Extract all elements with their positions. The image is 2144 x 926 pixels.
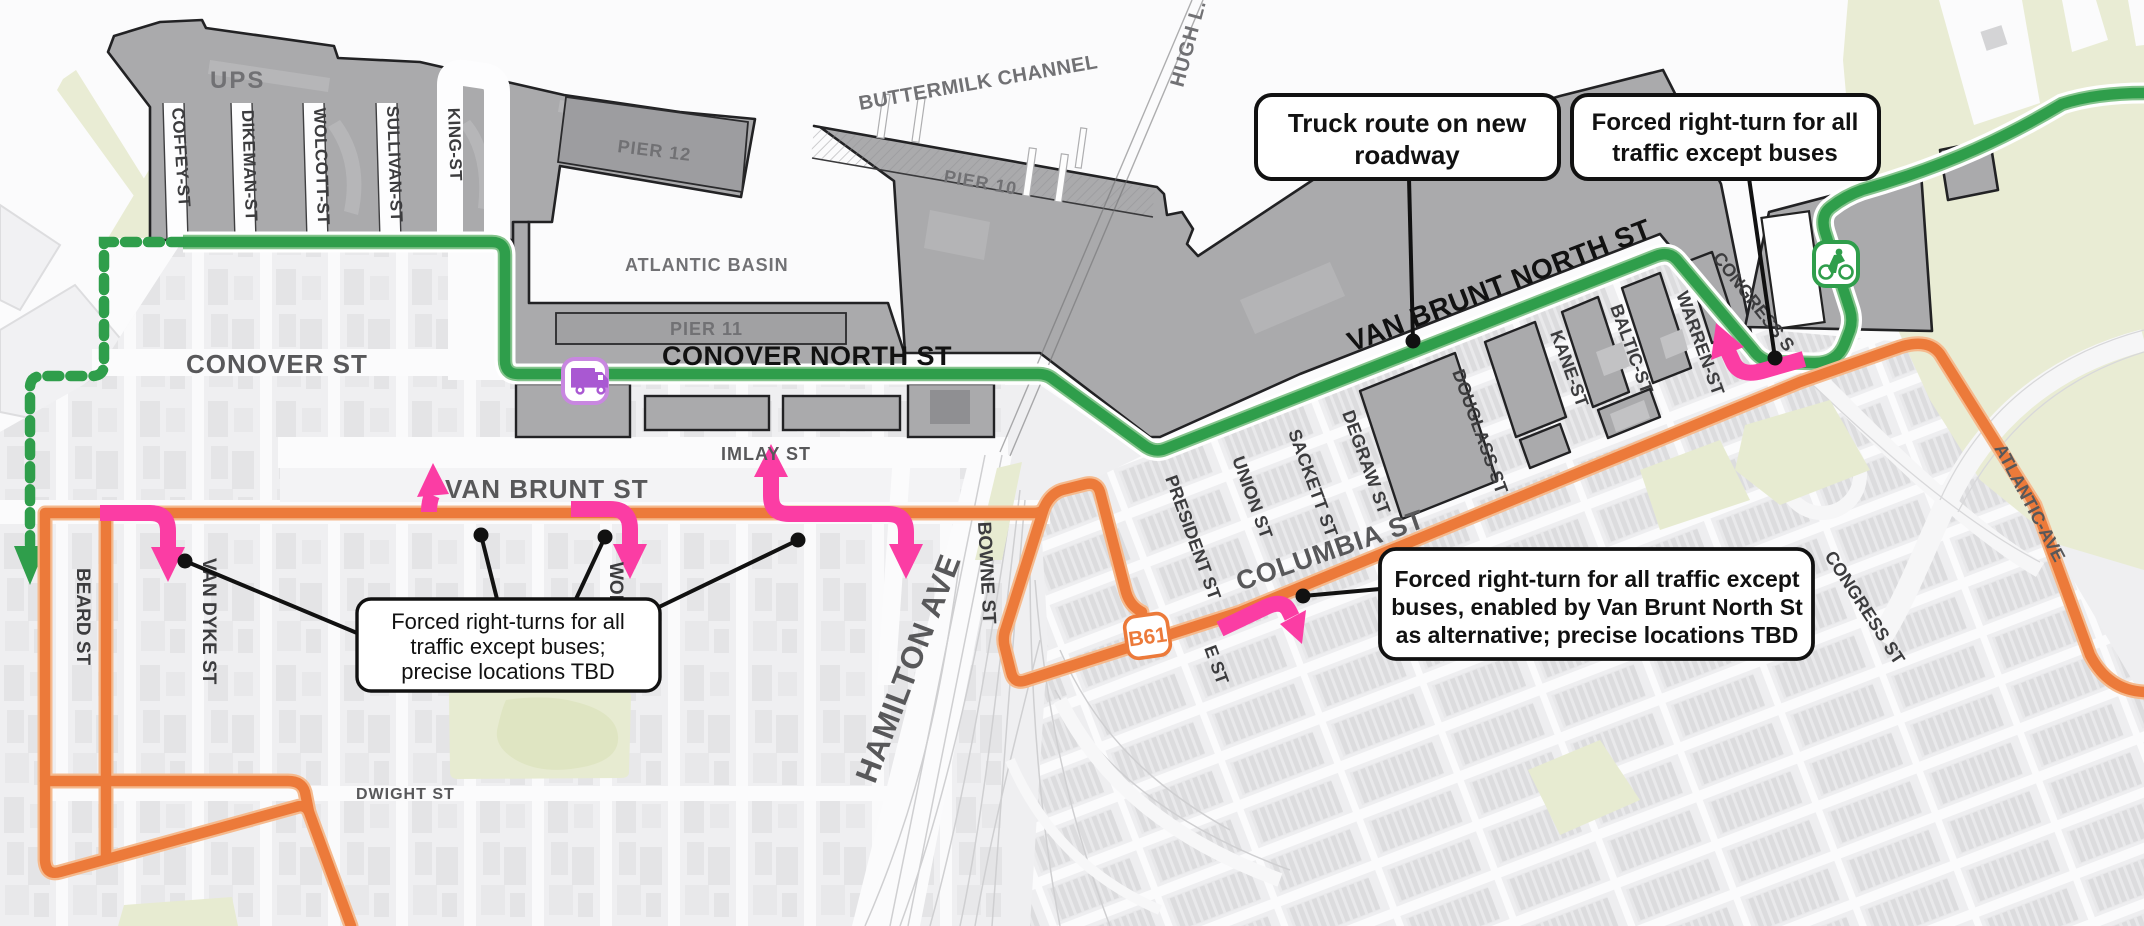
svg-text:Forced right-turns for all: Forced right-turns for all xyxy=(391,609,625,634)
svg-text:KING-ST: KING-ST xyxy=(444,107,466,181)
svg-text:VAN DYKE ST: VAN DYKE ST xyxy=(198,558,219,685)
svg-text:DWIGHT ST: DWIGHT ST xyxy=(356,786,455,803)
svg-text:roadway: roadway xyxy=(1354,140,1460,170)
svg-text:DIKEMAN-ST: DIKEMAN-ST xyxy=(238,109,261,221)
svg-text:Truck route on new: Truck route on new xyxy=(1288,108,1527,138)
svg-text:precise locations TBD: precise locations TBD xyxy=(401,659,615,684)
svg-text:buses, enabled by Van Brunt No: buses, enabled by Van Brunt North St xyxy=(1391,594,1803,620)
svg-text:IMLAY ST: IMLAY ST xyxy=(721,444,811,464)
svg-text:traffic except buses;: traffic except buses; xyxy=(410,634,605,659)
svg-text:BEARD ST: BEARD ST xyxy=(72,568,93,666)
svg-text:ATLANTIC BASIN: ATLANTIC BASIN xyxy=(625,255,789,275)
svg-text:Forced right-turn for all: Forced right-turn for all xyxy=(1592,109,1859,136)
svg-text:CONOVER ST: CONOVER ST xyxy=(186,349,368,379)
svg-text:PIER 11: PIER 11 xyxy=(670,319,743,339)
svg-text:UPS: UPS xyxy=(210,67,265,94)
svg-text:as alternative; precise locati: as alternative; precise locations TBD xyxy=(1396,622,1799,648)
svg-text:traffic except buses: traffic except buses xyxy=(1612,140,1837,167)
svg-text:Forced right-turn for all traf: Forced right-turn for all traffic except xyxy=(1394,566,1799,592)
svg-text:VAN BRUNT ST: VAN BRUNT ST xyxy=(445,474,649,504)
svg-text:CONOVER NORTH ST: CONOVER NORTH ST xyxy=(662,341,952,371)
